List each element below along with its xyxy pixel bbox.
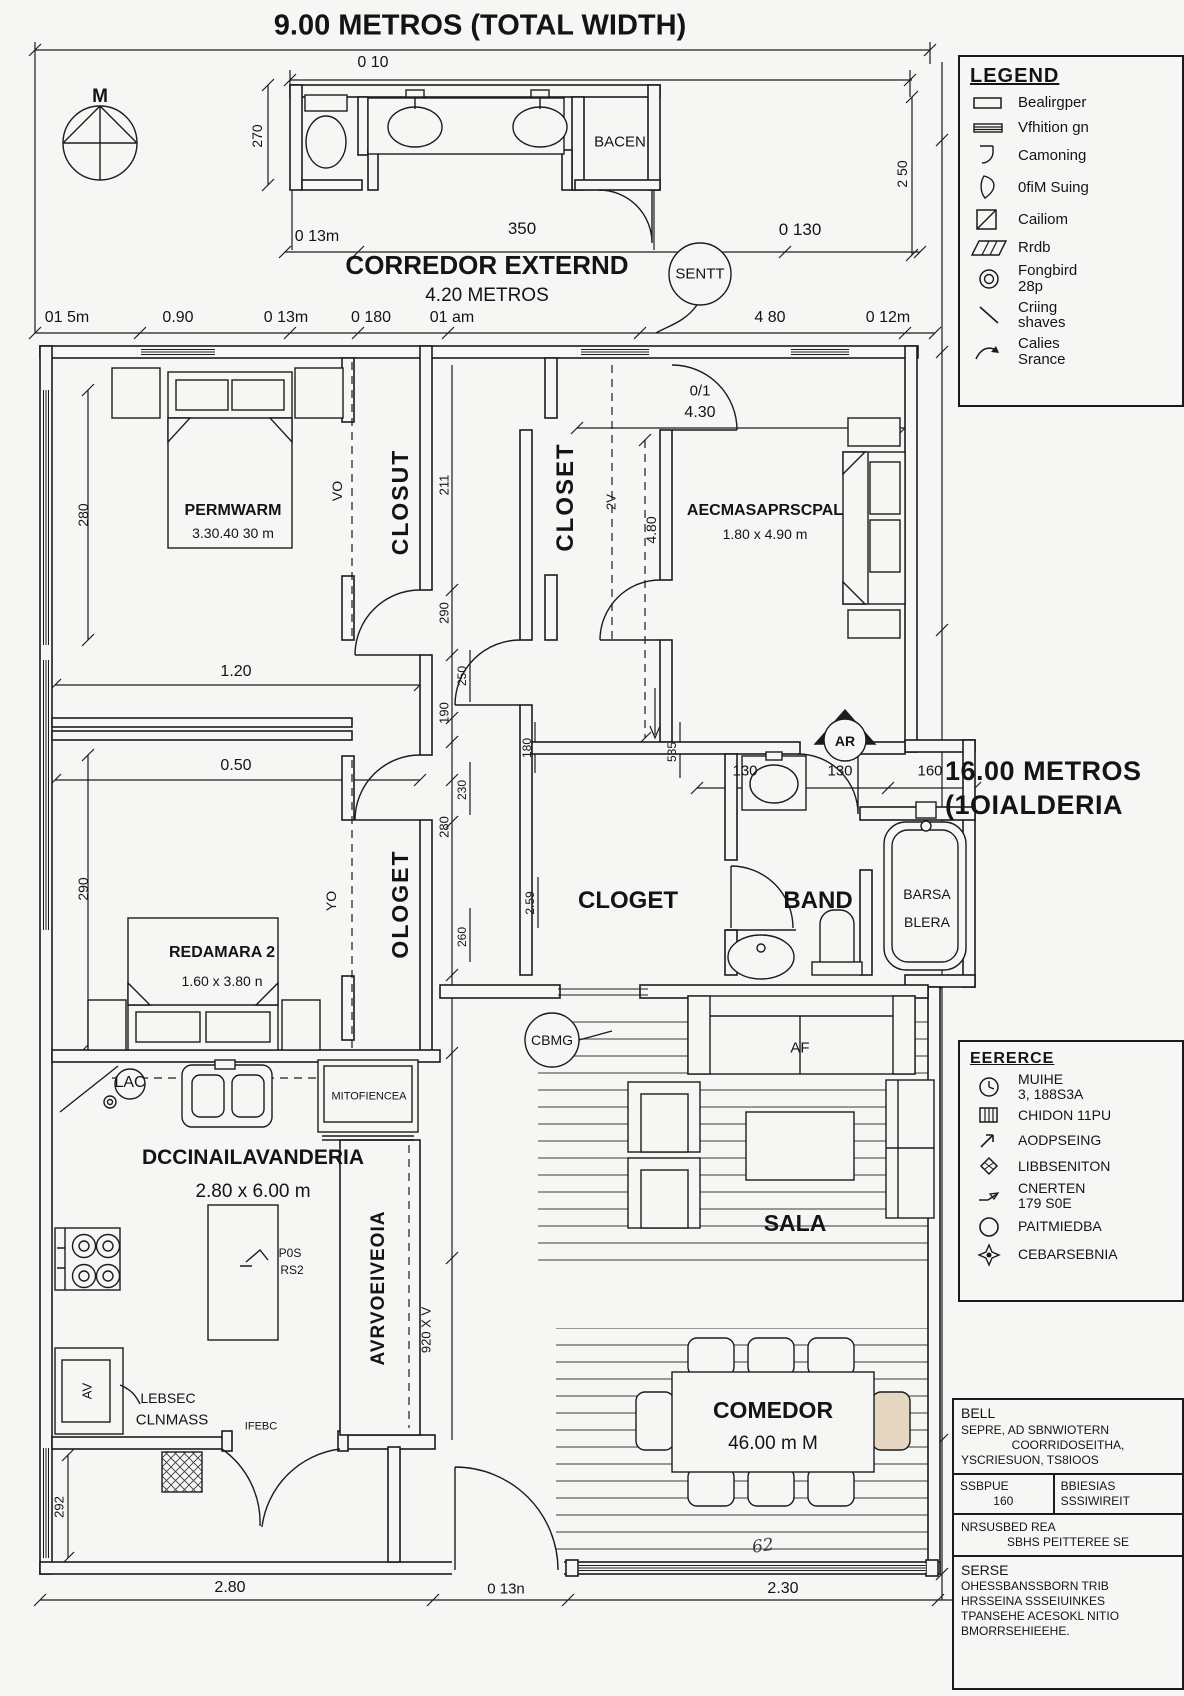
double-lines-icon [970, 118, 1008, 138]
legend-item: 0fiM Suing [970, 174, 1172, 202]
dim-chain-3: 190 [438, 702, 453, 724]
dim-bottom-2: 0 13n [487, 1580, 525, 1597]
reference-item: AODPSEING [970, 1129, 1172, 1151]
legend-item: Camoning [970, 143, 1172, 169]
legend-item: Rrdb [970, 238, 1172, 258]
diamond-icon [970, 1155, 1008, 1177]
pantry-label-1: LEBSEC [140, 1390, 195, 1406]
sentt-bubble-label: SENTT [675, 265, 724, 282]
room-cloget: CLOGET [578, 887, 678, 915]
dim-chain-2: 290 [438, 602, 453, 624]
dim-row3-4: 0 180 [351, 309, 391, 327]
arrow-icon [970, 1185, 1008, 1207]
info-table: BELL SEPRE, AD SBNWIOTERN COORRIDOSEITHA… [952, 1398, 1184, 1690]
dim-chain-9: 2.59 [524, 891, 538, 914]
dim-band-3: 160 [917, 762, 942, 779]
legend-panel: LEGEND Bealirgper Vfhition gn Camoning 0… [958, 55, 1184, 407]
curved-arrow-icon [970, 339, 1008, 365]
dim-row2-right: 0 130 [779, 220, 822, 240]
room-kitchen: DCCINAILAVANDERIA [142, 1146, 364, 1170]
dim-band-1: 130 [732, 762, 757, 779]
room-band: BAND [783, 887, 852, 915]
legend-title: LEGEND [970, 65, 1172, 88]
room-comedor-size: 46.00 m M [728, 1433, 818, 1455]
dim-band-2: 130 [827, 762, 852, 779]
bent-arrow-icon [970, 1129, 1008, 1151]
room-bacen: BACEN [594, 133, 646, 150]
ar-badge: AR [835, 733, 855, 749]
fridge-label: MITOFIENCEA [332, 1091, 407, 1104]
dim-chain-5: 250 [456, 666, 470, 686]
dim-row3-1: 01 5m [45, 309, 89, 327]
dim-top-width: 0 10 [357, 54, 388, 72]
closet-master-tag: 2V [605, 494, 620, 510]
door-label-ifebc: IFEBC [245, 1421, 277, 1434]
dim-master-v: 4.80 [643, 516, 659, 543]
dim-row3-2: 0.90 [162, 309, 193, 327]
door-swing-icon [970, 174, 1008, 202]
dim-row3-6: 4 80 [754, 309, 785, 327]
legend-item: Fongbird 28p [970, 263, 1172, 295]
island-note-2: RS2 [280, 1264, 303, 1278]
circle-icon [970, 1215, 1008, 1239]
hatch-icon [970, 238, 1008, 258]
room-master: AECMASAPRSCPAL [687, 502, 843, 520]
info-header: BELL SEPRE, AD SBNWIOTERN COORRIDOSEITHA… [954, 1400, 1182, 1475]
av-label: AV [81, 1383, 96, 1399]
kitchen-lac: LAC [114, 1074, 145, 1092]
dim-annex-right: 2 50 [894, 160, 910, 187]
dim-bottom-3: 2.30 [767, 1580, 798, 1598]
dim-annex-left: 270 [249, 124, 265, 147]
room-kitchen-size: 2.80 x 6.00 m [195, 1181, 310, 1203]
room-bedroom2: REDAMARA 2 [169, 944, 275, 962]
info-cell-1: SSBPUE160 [954, 1475, 1055, 1513]
dim-chain-10: 535 [666, 742, 680, 762]
diagonal-line-icon [970, 303, 1008, 327]
column-tag: 920 X V [420, 1307, 435, 1353]
dim-hall-2: 0.50 [220, 757, 251, 775]
room-bedroom1: PERMWARM [185, 502, 282, 520]
rect-icon [970, 93, 1008, 113]
room-comedor: COMEDOR [713, 1397, 833, 1423]
room-bedroom1-size: 3.30.40 30 m [192, 525, 274, 541]
legend-item: Vfhition gn [970, 118, 1172, 138]
dim-row2-mid: 350 [508, 219, 536, 239]
dim-chain-1: 211 [438, 475, 453, 496]
dim-row3-3: 0 13m [264, 309, 308, 327]
reference-item: CEBARSEBNIA [970, 1243, 1172, 1267]
dim-chain-8: 180 [521, 738, 535, 758]
info-cell-2: BBIESIASSSSIWIREIT [1055, 1475, 1182, 1513]
dim-left-v2: 290 [75, 877, 91, 900]
reference-item: CHIDON 11PU [970, 1105, 1172, 1125]
dim-row2-left: 0 13m [295, 228, 339, 246]
cbmg-bubble-label: CBMG [531, 1032, 573, 1048]
reference-item: CNERTEN 179 S0E [970, 1181, 1172, 1210]
door-frame-icon [970, 143, 1008, 169]
dim-left-v3: 292 [53, 1496, 68, 1518]
info-title: BELL [961, 1405, 1175, 1423]
room-bath-1: BARSA [903, 886, 950, 902]
double-circle-icon [970, 266, 1008, 292]
legend-item: Bealirgper [970, 93, 1172, 113]
page-title: 9.00 METROS (TOTAL WIDTH) [274, 9, 686, 42]
dim-row3-5: 01 am [430, 309, 474, 327]
compass-label: M [92, 86, 108, 108]
room-bath-2: BLERA [904, 914, 950, 930]
dim-master-top-b: 4.30 [684, 404, 715, 422]
star-icon [970, 1243, 1008, 1267]
closet1-tag: VO [329, 481, 345, 501]
room-corridor: CORREDOR EXTERND [345, 251, 628, 281]
floor-hatch [538, 1006, 935, 1558]
room-closet-master: CLOSET [552, 442, 580, 551]
info-row: SSBPUE160 BBIESIASSSSIWIREIT [954, 1475, 1182, 1515]
total-length-line1: 16.00 METROS [945, 756, 1142, 787]
closet2-tag: YO [323, 891, 339, 911]
floor-plan-page: 9.00 METROS (TOTAL WIDTH) M 0 10 270 2 5… [0, 0, 1184, 1696]
legend-item: Criing shaves [970, 300, 1172, 332]
handwritten-note: 62 [751, 1536, 775, 1558]
pantry-label-2: CLNMASS [136, 1411, 209, 1428]
room-closet2: OLOGET [387, 849, 413, 958]
reference-panel: EERERCE MUIHE 3, 188S3A CHIDON 11PU AODP… [958, 1040, 1184, 1302]
square-diagonal-icon [970, 207, 1008, 233]
dim-master-top-a: 0/1 [690, 382, 711, 399]
dim-row3-7: 0 12m [866, 309, 910, 327]
corridor-size: 4.20 METROS [425, 285, 549, 307]
grid-icon [970, 1105, 1008, 1125]
legend-item: Calies Srance [970, 336, 1172, 368]
total-length-line2: (1OIALDERIA [945, 790, 1123, 821]
dim-chain-7: 260 [456, 927, 470, 947]
reference-item: LIBBSENITON [970, 1155, 1172, 1177]
info-section-3: SERSE OHESSBANSSBORN TRIB HRSSEINA SSSEI… [954, 1557, 1182, 1645]
dim-left-v1: 280 [75, 503, 91, 526]
dim-chain-4: 280 [438, 816, 453, 838]
sofa-label: AF [790, 1039, 809, 1056]
column-label: AVRVOEIVEOIA [368, 1211, 390, 1366]
room-closet1: CLOSUT [387, 449, 413, 556]
clock-icon [970, 1075, 1008, 1099]
legend-item: Cailiom [970, 207, 1172, 233]
info-section-2: NRSUSBED REA SBHS PEITTEREE SE [954, 1515, 1182, 1557]
compass-icon [63, 106, 137, 180]
island-note-1: P0S [279, 1247, 302, 1261]
room-master-size: 1.80 x 4.90 m [723, 526, 808, 542]
dim-chain-6: 230 [456, 780, 470, 800]
dim-hall-1: 1.20 [220, 663, 251, 681]
dim-bottom-1: 2.80 [214, 1579, 245, 1597]
reference-item: MUIHE 3, 188S3A [970, 1072, 1172, 1101]
room-bedroom2-size: 1.60 x 3.80 n [182, 973, 263, 989]
reference-item: PAITMIEDBA [970, 1215, 1172, 1239]
room-sala: SALA [764, 1210, 827, 1236]
reference-title: EERERCE [970, 1050, 1172, 1068]
